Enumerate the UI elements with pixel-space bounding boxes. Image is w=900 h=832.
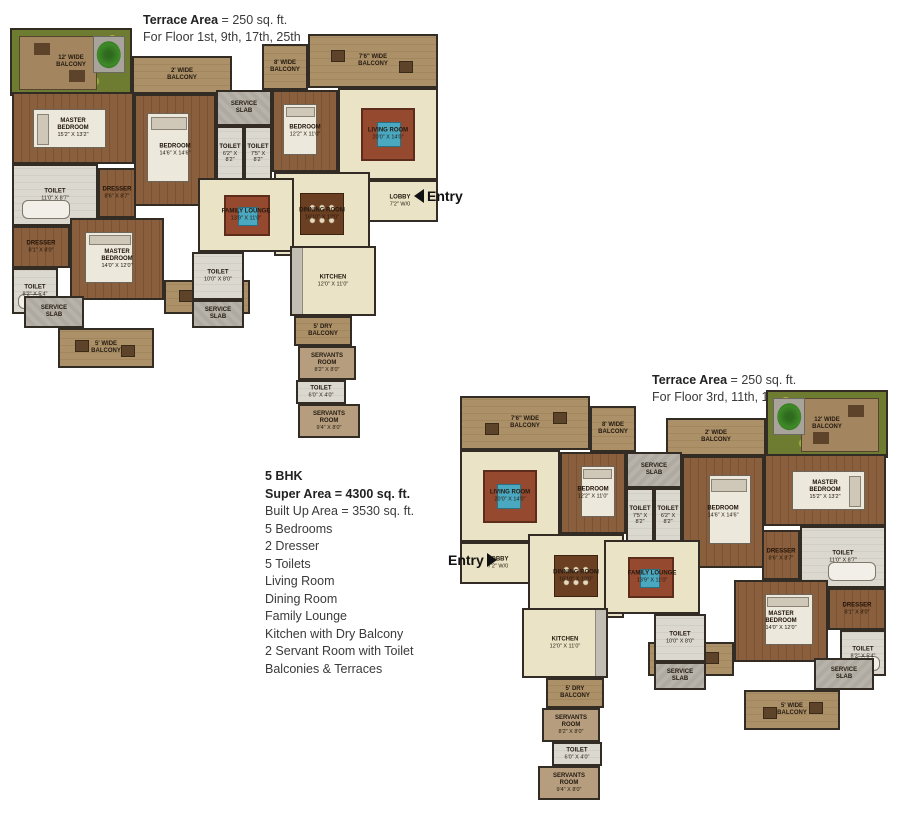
room-label: TOILET7'5" X 8'2" [246, 144, 270, 164]
room-label: SERVICE SLAB [656, 669, 704, 683]
tub-furniture [828, 562, 876, 581]
entry-arrow-right-icon [487, 553, 497, 567]
room-label: 7'6" WIDE BALCONY [310, 54, 436, 68]
room-label: 5' WIDE BALCONY [746, 703, 838, 717]
room-label: BEDROOM12'2" X 11'0" [274, 124, 336, 137]
plan-1-room-dry-balcony: 5' DRY BALCONY [294, 316, 352, 346]
room-label: DRESSER8'6" X 8'7" [764, 548, 798, 561]
room-label: FAMILY LOUNGE13'9" X 11'0" [200, 208, 292, 221]
plan-1-room-master-bedroom-1: MASTER BEDROOM15'2" X 13'2" [12, 92, 134, 164]
plan-2-room-toilet-5: TOILET10'0" X 8'0" [654, 614, 706, 662]
spec-item: Built Up Area = 3530 sq. ft. [265, 503, 414, 521]
room-label: LIVING ROOM20'0" X 14'0" [340, 127, 436, 140]
room-label: BEDROOM12'2" X 11'0" [562, 486, 624, 499]
room-label: DRESSER8'1" X 8'0" [830, 602, 884, 615]
plan-1-room-balcony-2ft: 2' WIDE BALCONY [132, 56, 232, 94]
plan-2-room-living-room: LIVING ROOM20'0" X 14'0" [460, 450, 560, 542]
entry-label-1: Entry [427, 188, 463, 204]
plan-1-room-balcony-7ft6: 7'6" WIDE BALCONY [308, 34, 438, 88]
room-label: LIVING ROOM20'0" X 14'0" [462, 489, 558, 502]
plan-1-room-servant-room-2: SERVANTS ROOM9'4" X 8'0" [298, 404, 360, 438]
seats-furniture [755, 700, 829, 720]
room-label: SERVICE SLAB [194, 307, 242, 321]
room-label: SERVANTS ROOM8'2" X 8'0" [300, 353, 354, 373]
counter-furniture [595, 610, 606, 676]
seats-furniture [323, 47, 424, 75]
deck-furniture [19, 36, 97, 90]
plan-1-room-terrace-12ft-balcony: 12' WIDE BALCONY [10, 28, 132, 96]
plan-1: 12' WIDE BALCONY2' WIDE BALCONY8' WIDE B… [10, 28, 440, 468]
room-label: BEDROOM14'6" X 14'6" [136, 143, 214, 156]
plan-2-room-family-lounge: FAMILY LOUNGE13'9" X 11'0" [604, 540, 700, 614]
room-label: SERVICE SLAB [816, 667, 872, 681]
specs-details: Built Up Area = 3530 sq. ft.5 Bedrooms2 … [265, 503, 414, 678]
plan-1-room-balcony-8ft: 8' WIDE BALCONY [262, 44, 308, 90]
specs-title: 5 BHK [265, 468, 414, 486]
room-label: TOILET10'0" X 8'0" [194, 269, 242, 282]
room-label: 5' WIDE BALCONY [60, 341, 152, 355]
plan-2-room-service-slab-2: SERVICE SLAB [814, 658, 874, 690]
plan-1-room-balcony-5ft: 5' WIDE BALCONY [58, 328, 154, 368]
plan-1-room-family-lounge: FAMILY LOUNGE13'9" X 11'0" [198, 178, 294, 252]
room-label: 5' DRY BALCONY [548, 686, 602, 700]
specs-block: 5 BHK Super Area = 4300 sq. ft. Built Up… [265, 468, 414, 678]
bed-h-furniture [33, 109, 106, 148]
room-label: TOILET6'0" X 4'0" [554, 747, 600, 760]
plan-2-room-toilet-2: TOILET7'5" X 8'2" [626, 488, 654, 544]
table-furniture [300, 193, 344, 235]
room-label: MASTER BEDROOM15'2" X 13'2" [766, 480, 884, 500]
room-label: 5' DRY BALCONY [296, 324, 350, 338]
plan-2-room-balcony-5ft: 5' WIDE BALCONY [744, 690, 840, 730]
room-label: FAMILY LOUNGE13'9" X 11'0" [606, 570, 698, 583]
spec-item: 2 Servant Room with Toilet [265, 643, 414, 661]
plan-2-room-balcony-8ft: 8' WIDE BALCONY [590, 406, 636, 452]
room-label: SERVICE SLAB [218, 101, 270, 115]
tree-icon [93, 36, 126, 73]
room-label: DRESSER8'6" X 8'7" [100, 186, 134, 199]
spec-item: Family Lounge [265, 608, 414, 626]
plan-2-room-service-slab-3: SERVICE SLAB [654, 662, 706, 690]
plan-2: 12' WIDE BALCONY2' WIDE BALCONY8' WIDE B… [458, 390, 888, 830]
floor-plan-page: Terrace Area = 250 sq. ft. For Floor 1st… [0, 0, 900, 832]
room-label: TOILET10'0" X 8'0" [656, 631, 704, 644]
plan-2-room-toilet-6: TOILET6'0" X 4'0" [552, 742, 602, 766]
room-label: SERVANTS ROOM8'2" X 8'0" [544, 715, 598, 735]
spec-item: 5 Bedrooms [265, 521, 414, 539]
room-label: 8' WIDE BALCONY [592, 422, 634, 436]
bed-v-furniture [765, 594, 814, 644]
plan-1-room-service-slab-1: SERVICE SLAB [216, 90, 272, 126]
room-label: TOILET6'2" X 8'2" [656, 506, 680, 526]
entry-marker-2: Entry [448, 552, 497, 568]
room-label: BEDROOM14'6" X 14'6" [684, 505, 762, 518]
plan-1-room-bedroom-2: BEDROOM12'2" X 11'0" [272, 90, 338, 172]
rug-furniture [483, 470, 537, 523]
room-label: 7'6" WIDE BALCONY [462, 416, 588, 430]
plan-2-room-dresser-2: DRESSER8'1" X 8'0" [828, 588, 886, 630]
room-label: TOILET7'5" X 8'2" [628, 506, 652, 526]
rug-furniture [361, 108, 415, 161]
room-label: 8' WIDE BALCONY [264, 60, 306, 74]
room-label: KITCHEN12'0" X 11'0" [292, 274, 374, 287]
plan-2-room-toilet-3: TOILET11'0" X 8'7" [800, 526, 886, 588]
room-label: MASTER BEDROOM14'0" X 12'0" [72, 249, 162, 269]
entry-arrow-left-icon [414, 189, 424, 203]
spec-item: 2 Dresser [265, 538, 414, 556]
plan-1-room-kitchen: KITCHEN12'0" X 11'0" [290, 246, 376, 316]
plan-2-room-servant-room-1: SERVANTS ROOM8'2" X 8'0" [542, 708, 600, 742]
plan-1-room-toilet-1: TOILET6'2" X 8'2" [216, 126, 244, 182]
terrace-note-1-label: Terrace Area [143, 13, 218, 27]
plan-2-room-terrace-12ft-balcony: 12' WIDE BALCONY [766, 390, 888, 458]
plan-2-room-toilet-1: TOILET6'2" X 8'2" [654, 488, 682, 544]
terrace-note-2-value: = 250 sq. ft. [731, 373, 797, 387]
plan-1-room-toilet-2: TOILET7'5" X 8'2" [244, 126, 272, 182]
plan-2-room-master-bedroom-1: MASTER BEDROOM15'2" X 13'2" [764, 454, 886, 526]
plan-1-room-servant-room-1: SERVANTS ROOM8'2" X 8'0" [298, 346, 356, 380]
room-label: SERVICE SLAB [26, 305, 82, 319]
room-label: SERVANTS ROOM9'4" X 8'0" [300, 411, 358, 431]
terrace-note-2-label: Terrace Area [652, 373, 727, 387]
plan-1-room-master-bedroom-2: MASTER BEDROOM14'0" X 12'0" [70, 218, 164, 300]
spec-item: Living Room [265, 573, 414, 591]
seats-furniture [69, 338, 143, 358]
plan-1-room-service-slab-2: SERVICE SLAB [24, 296, 84, 328]
plan-1-room-service-slab-3: SERVICE SLAB [192, 300, 244, 328]
bed-v-furniture [85, 232, 134, 282]
room-label: SERVANTS ROOM9'4" X 8'0" [540, 773, 598, 793]
bed-h-furniture [792, 471, 865, 510]
bed-v-furniture [709, 475, 752, 544]
bed-v-furniture [283, 104, 317, 154]
room-label: TOILET6'0" X 4'0" [298, 385, 344, 398]
room-label: TOILET11'0" X 8'7" [802, 550, 884, 563]
spec-item: Balconies & Terraces [265, 661, 414, 679]
tub-furniture [22, 200, 70, 219]
entry-label-2: Entry [448, 552, 484, 568]
table-furniture [554, 555, 598, 597]
plan-2-room-kitchen: KITCHEN12'0" X 11'0" [522, 608, 608, 678]
room-label: KITCHEN12'0" X 11'0" [524, 636, 606, 649]
plan-2-room-master-bedroom-2: MASTER BEDROOM14'0" X 12'0" [734, 580, 828, 662]
room-label: 2' WIDE BALCONY [668, 430, 764, 444]
plan-1-room-toilet-6: TOILET6'0" X 4'0" [296, 380, 346, 404]
spec-item: Kitchen with Dry Balcony [265, 626, 414, 644]
room-label: SERVICE SLAB [628, 463, 680, 477]
bed-v-furniture [581, 466, 615, 516]
terrace-note-1-value: = 250 sq. ft. [222, 13, 288, 27]
room-label: TOILET11'0" X 8'7" [14, 188, 96, 201]
plan-1-room-dresser-1: DRESSER8'6" X 8'7" [98, 168, 136, 218]
plan-2-room-balcony-7ft6: 7'6" WIDE BALCONY [460, 396, 590, 450]
room-label: DRESSER8'1" X 8'0" [14, 240, 68, 253]
room-label: MASTER BEDROOM14'0" X 12'0" [736, 611, 826, 631]
plan-2-room-dry-balcony: 5' DRY BALCONY [546, 678, 604, 708]
plan-2-room-bedroom-2: BEDROOM12'2" X 11'0" [560, 452, 626, 534]
plan-1-room-toilet-5: TOILET10'0" X 8'0" [192, 252, 244, 300]
spec-item: Dining Room [265, 591, 414, 609]
rug2-furniture [628, 557, 674, 597]
entry-marker-1: Entry [414, 188, 463, 204]
specs-super-area: Super Area = 4300 sq. ft. [265, 486, 414, 504]
plan-2-room-dresser-1: DRESSER8'6" X 8'7" [762, 530, 800, 580]
room-label: MASTER BEDROOM15'2" X 13'2" [14, 118, 132, 138]
rug2-furniture [224, 195, 270, 235]
tree-icon [773, 398, 806, 435]
deck-furniture [801, 398, 879, 452]
spec-item: 5 Toilets [265, 556, 414, 574]
room-label: TOILET6'2" X 8'2" [218, 144, 242, 164]
plan-2-room-service-slab-1: SERVICE SLAB [626, 452, 682, 488]
seats-furniture [475, 409, 576, 437]
bed-v-furniture [147, 113, 190, 182]
plan-2-room-balcony-2ft: 2' WIDE BALCONY [666, 418, 766, 456]
plan-1-room-dresser-2: DRESSER8'1" X 8'0" [12, 226, 70, 268]
plan-2-room-servant-room-2: SERVANTS ROOM9'4" X 8'0" [538, 766, 600, 800]
plan-1-room-toilet-3: TOILET11'0" X 8'7" [12, 164, 98, 226]
counter-furniture [292, 248, 303, 314]
room-label: 2' WIDE BALCONY [134, 68, 230, 82]
plan-1-room-living-room: LIVING ROOM20'0" X 14'0" [338, 88, 438, 180]
